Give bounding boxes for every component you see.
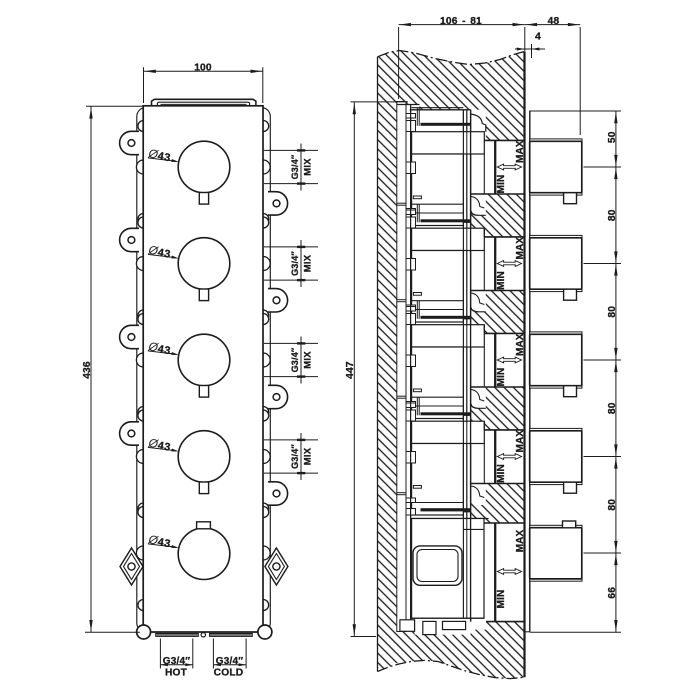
svg-text:50: 50 — [607, 131, 618, 143]
svg-text:MIX: MIX — [302, 447, 313, 465]
svg-text:106 - 81: 106 - 81 — [440, 16, 482, 27]
svg-text:MAX: MAX — [515, 430, 526, 453]
svg-text:436: 436 — [82, 361, 93, 379]
svg-text:G3/4″: G3/4″ — [290, 444, 300, 469]
svg-text:MIN: MIN — [496, 368, 507, 387]
svg-text:G3/4″: G3/4″ — [216, 656, 243, 667]
svg-text:100: 100 — [194, 63, 212, 74]
svg-text:G3/4″: G3/4″ — [290, 347, 300, 372]
svg-text:4: 4 — [535, 31, 541, 43]
svg-text:80: 80 — [607, 499, 618, 511]
svg-text:MAX: MAX — [515, 140, 526, 163]
svg-text:MIX: MIX — [302, 254, 313, 272]
svg-text:MAX: MAX — [515, 530, 526, 553]
svg-text:MIX: MIX — [302, 158, 313, 176]
svg-text:43: 43 — [157, 343, 172, 357]
svg-text:COLD: COLD — [214, 668, 244, 679]
svg-text:48: 48 — [548, 16, 560, 27]
svg-text:G3/4″: G3/4″ — [290, 251, 300, 276]
svg-text:43: 43 — [157, 440, 172, 454]
svg-text:MIN: MIN — [496, 271, 507, 290]
svg-text:MIN: MIN — [496, 175, 507, 194]
svg-text:G3/4″: G3/4″ — [163, 656, 190, 667]
svg-text:MIX: MIX — [302, 351, 313, 369]
svg-text:MAX: MAX — [515, 333, 526, 356]
svg-text:80: 80 — [607, 306, 618, 318]
svg-text:G3/4″: G3/4″ — [290, 154, 300, 179]
svg-text:MIN: MIN — [496, 590, 507, 609]
svg-text:80: 80 — [607, 402, 618, 414]
svg-text:MAX: MAX — [515, 237, 526, 260]
svg-text:80: 80 — [607, 209, 618, 221]
svg-text:HOT: HOT — [165, 668, 188, 679]
svg-text:66: 66 — [607, 587, 618, 599]
svg-text:43: 43 — [157, 247, 172, 261]
svg-text:MIN: MIN — [496, 464, 507, 483]
svg-text:43: 43 — [157, 150, 172, 164]
svg-text:447: 447 — [345, 361, 356, 379]
svg-text:43: 43 — [157, 536, 172, 550]
